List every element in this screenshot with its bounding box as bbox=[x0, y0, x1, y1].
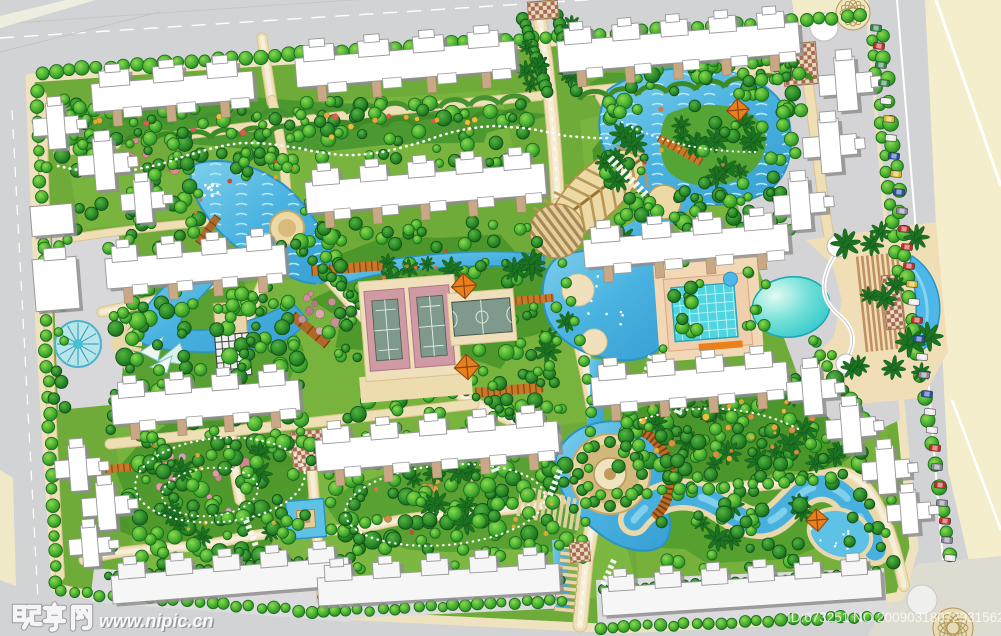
svg-text:www.nipic.cn: www.nipic.cn bbox=[99, 611, 213, 631]
svg-text:ID:673251 NO.20090318072931562: ID:673251 NO.20090318072931562984 bbox=[787, 610, 1001, 625]
